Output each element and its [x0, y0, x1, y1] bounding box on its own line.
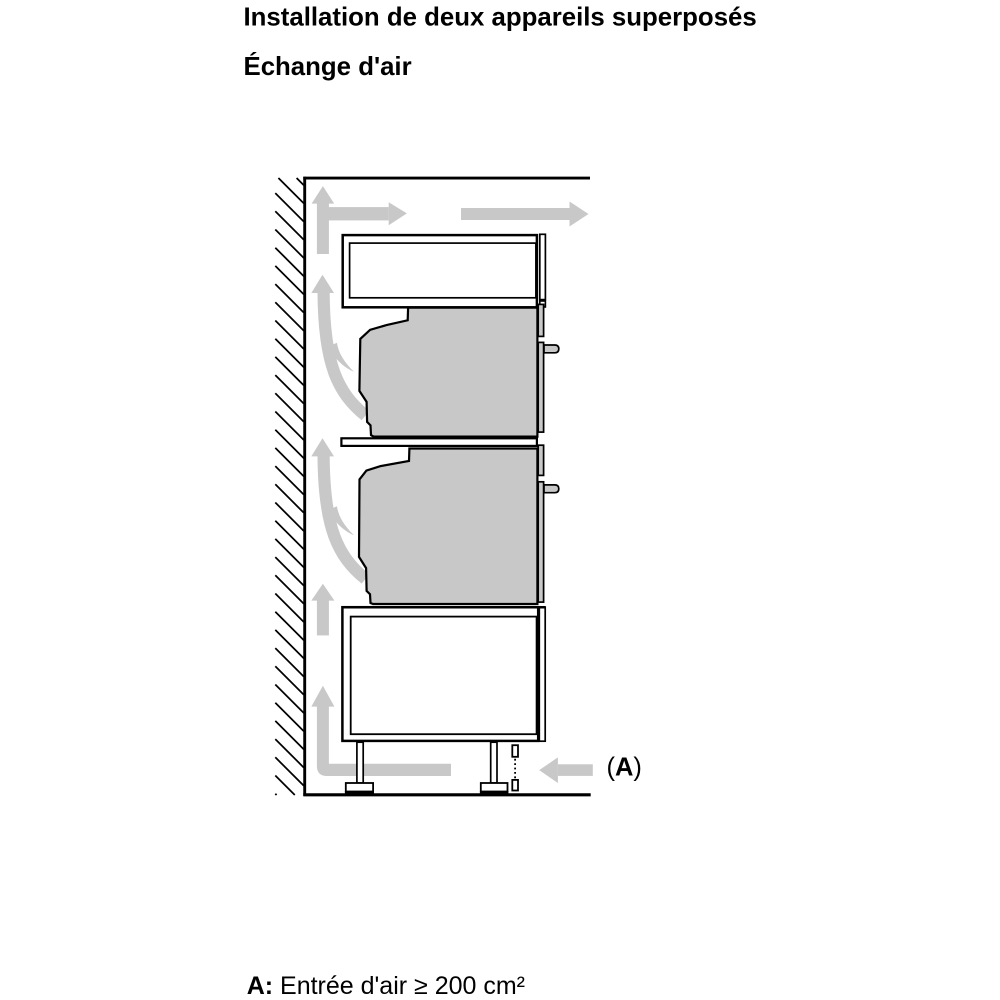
svg-text:(A): (A): [607, 754, 642, 782]
svg-text:A: Entrée d'air ≥ 200 cm²: A: Entrée d'air ≥ 200 cm²: [247, 972, 525, 1000]
svg-text:Échange d'air: Échange d'air: [244, 52, 412, 81]
svg-text:Installation de deux appareils: Installation de deux appareils superposé…: [244, 3, 757, 31]
